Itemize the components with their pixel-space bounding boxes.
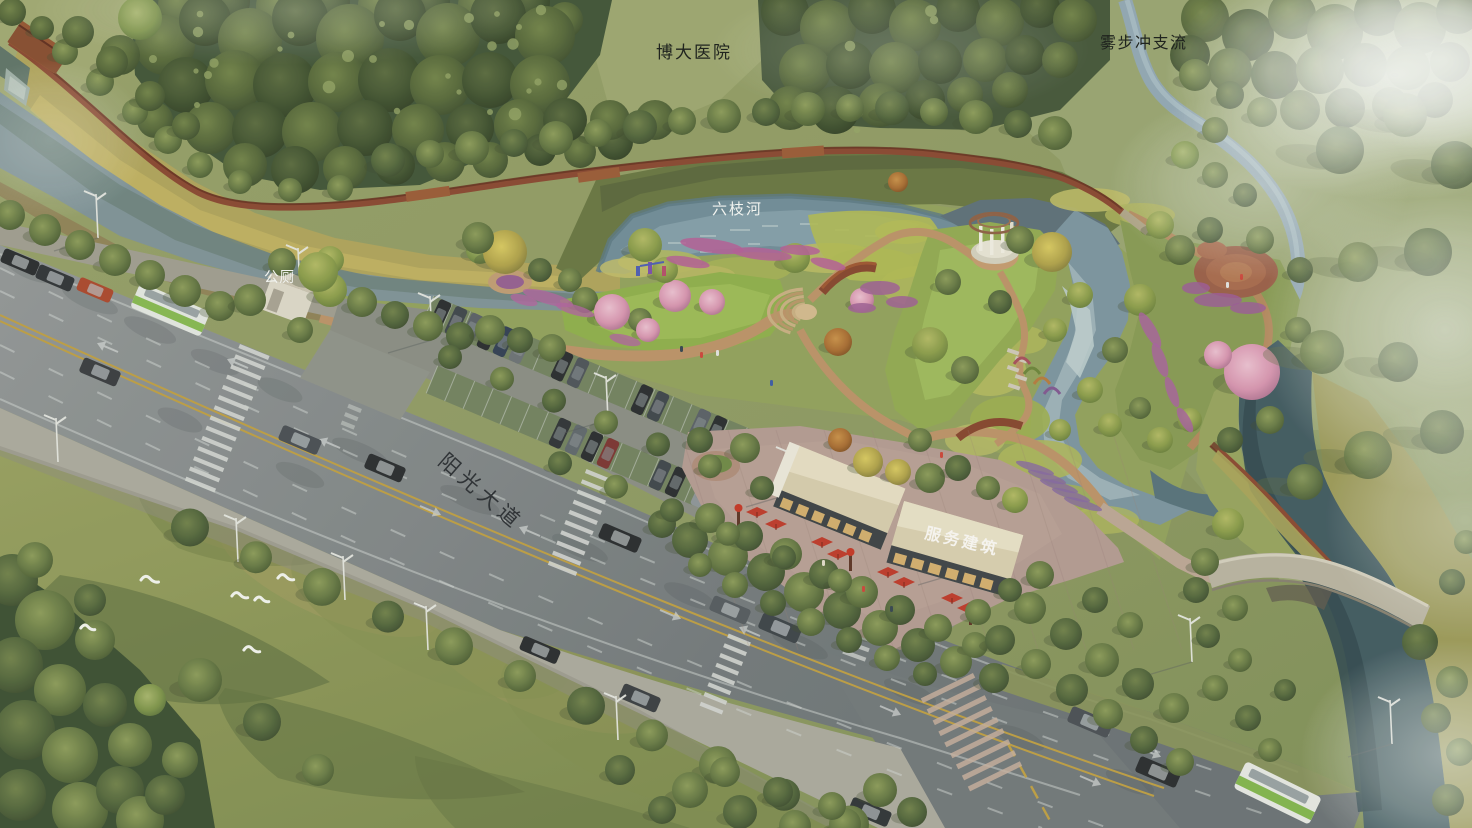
svg-text:雾步冲支流: 雾步冲支流 <box>1100 34 1188 52</box>
svg-text:六枝河: 六枝河 <box>712 201 763 218</box>
svg-text:公厕: 公厕 <box>264 270 295 286</box>
svg-text:博大医院: 博大医院 <box>656 43 732 62</box>
